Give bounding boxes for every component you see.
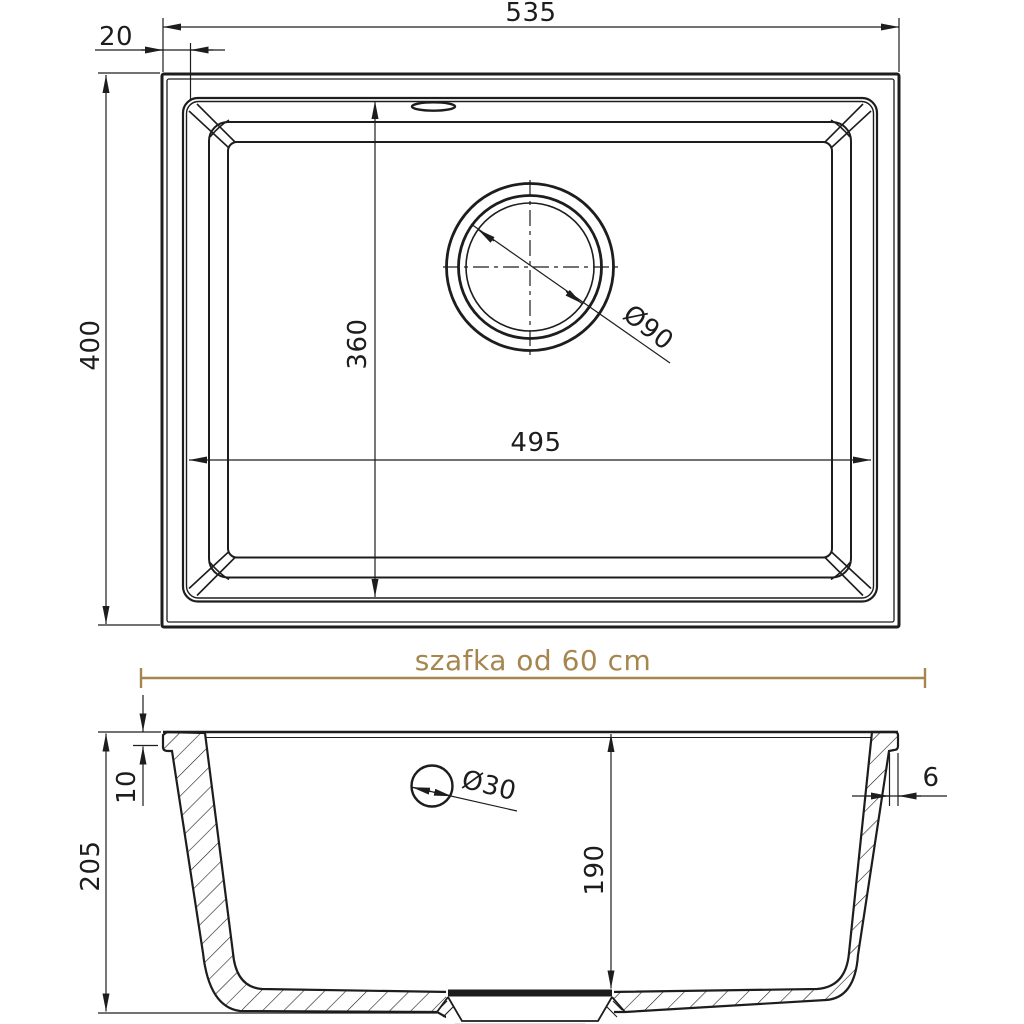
dim-label-bowl-inner-depth: 190	[582, 844, 608, 895]
dim-label-rim-offset: 20	[99, 24, 133, 50]
dim-400-lines	[98, 73, 160, 625]
dim-label-total-height: 205	[78, 840, 104, 891]
dim-label-wall-thickness: 6	[922, 765, 939, 791]
dim-label-rim-height: 10	[114, 770, 140, 804]
dim-205-lines	[98, 732, 437, 1013]
dim-label-outer-depth: 400	[78, 319, 104, 370]
drain-recess	[437, 989, 625, 1023]
dim-label-bowl-depth: 360	[345, 318, 371, 369]
section-material	[163, 732, 898, 1022]
cabinet-width-note: szafka od 60 cm	[415, 647, 652, 675]
dim-label-total-width: 535	[505, 0, 556, 26]
section-view-drawing	[98, 695, 947, 1023]
overflow-slot	[412, 102, 455, 110]
top-view-drawing	[95, 18, 899, 627]
sink-technical-drawing	[0, 0, 1024, 1024]
technical-drawing-page: 535 20 400 360 495 Ø90 szafka od 60 cm 2…	[0, 0, 1024, 1024]
dim-label-bowl-width: 495	[510, 430, 561, 456]
